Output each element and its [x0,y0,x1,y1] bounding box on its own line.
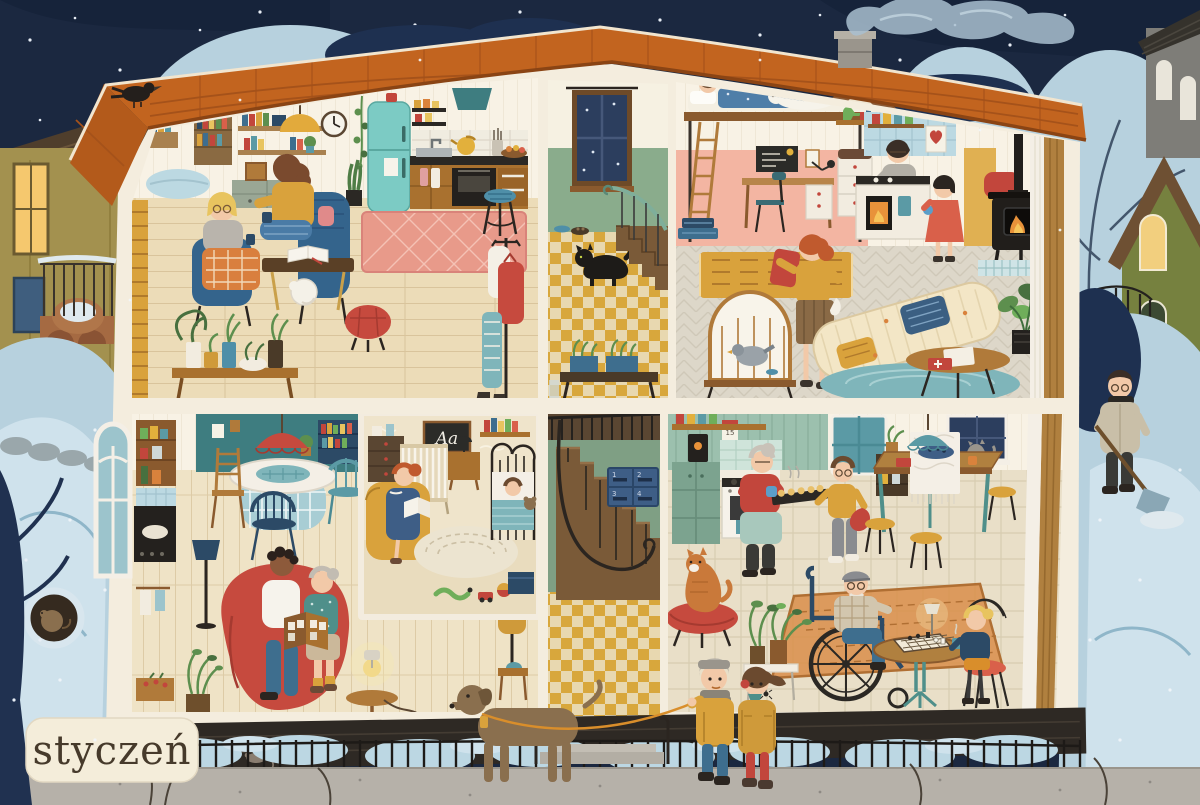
calendar-day: 15 [726,429,735,437]
mailboxes: 1 2 3 4 [608,468,658,506]
birdcage-with-pigeon [704,292,796,400]
floor-cushion [146,169,210,199]
mailbox-number-4: 4 [637,490,642,498]
heart-poster [926,126,946,152]
mailbox-number-2: 2 [637,471,641,479]
upper-flight-balustrade [548,414,660,440]
scene-canvas: Aa [0,0,1200,805]
blue-bench-stack [678,218,718,239]
room-living-kitchen-topleft [132,78,538,408]
stairwell-lower: 1 2 3 4 [548,414,660,716]
stairwell-window [566,88,638,192]
month-label: styczeń [26,718,198,782]
room-dining-bottomleft: Aa [132,410,542,731]
room2-right-wood-wall [1030,134,1064,398]
exterior-arched-window [96,424,130,576]
wall-clock [322,112,346,136]
mailbox-number-3: 3 [612,490,616,498]
month-label-text: styczeń [32,728,191,774]
vole-burrow [27,591,81,645]
illustration-winter-house-cutaway: Aa [0,0,1200,805]
grey-house-top-right [1138,10,1200,158]
stairwell-upper [548,76,668,400]
left-window-shutter [132,200,148,408]
mailbox-number-1: 1 [612,471,616,479]
nursery-room: Aa [358,410,542,620]
